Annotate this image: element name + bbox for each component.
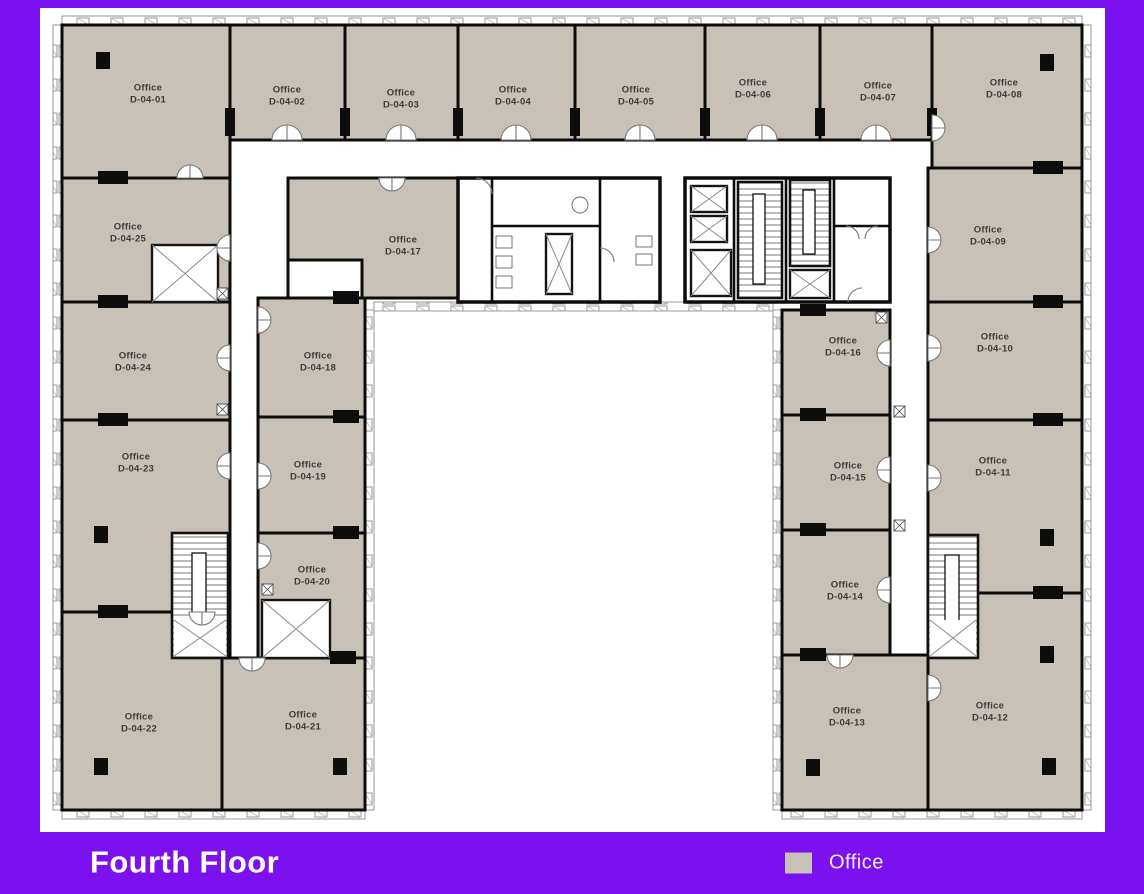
room-label-d-04-02: OfficeD-04-02 (269, 85, 305, 110)
room-label-d-04-05: OfficeD-04-05 (618, 85, 654, 110)
room-label-d-04-14: OfficeD-04-14 (827, 580, 863, 605)
footer: Fourth Floor Office (0, 832, 1144, 894)
floorplan-graphic (40, 8, 1105, 832)
room-label-d-04-16: OfficeD-04-16 (825, 336, 861, 361)
room-label-d-04-18: OfficeD-04-18 (300, 351, 336, 376)
restroom-core (458, 178, 660, 302)
left-wing-stairs (172, 533, 228, 658)
room-label-d-04-21: OfficeD-04-21 (285, 710, 321, 735)
room-label-d-04-13: OfficeD-04-13 (829, 706, 865, 731)
elevator-stair-core (685, 178, 890, 302)
room-label-d-04-12: OfficeD-04-12 (972, 701, 1008, 726)
floorplan-canvas: OfficeD-04-01 OfficeD-04-02 OfficeD-04-0… (40, 8, 1105, 832)
room-label-d-04-01: OfficeD-04-01 (130, 83, 166, 108)
room-label-d-04-24: OfficeD-04-24 (115, 351, 151, 376)
legend-office-swatch (785, 853, 812, 874)
room-label-d-04-03: OfficeD-04-03 (383, 88, 419, 113)
room-label-d-04-19: OfficeD-04-19 (290, 460, 326, 485)
room-label-d-04-11: OfficeD-04-11 (975, 456, 1011, 481)
room-label-d-04-23: OfficeD-04-23 (118, 452, 154, 477)
legend: Office (785, 852, 884, 875)
right-wing-stairs (928, 535, 978, 658)
room-label-d-04-08: OfficeD-04-08 (986, 78, 1022, 103)
room-label-d-04-04: OfficeD-04-04 (495, 85, 531, 110)
room-label-d-04-07: OfficeD-04-07 (860, 81, 896, 106)
floor-title: Fourth Floor (90, 844, 279, 880)
room-label-d-04-20: OfficeD-04-20 (294, 565, 330, 590)
room-label-d-04-25: OfficeD-04-25 (110, 222, 146, 247)
legend-office-label: Office (829, 852, 884, 875)
page: { "colors": { "frame": "#7c11f0", "canva… (0, 0, 1144, 894)
room-label-d-04-22: OfficeD-04-22 (121, 712, 157, 737)
room-label-d-04-10: OfficeD-04-10 (977, 332, 1013, 357)
room-label-d-04-09: OfficeD-04-09 (970, 225, 1006, 250)
room-label-d-04-15: OfficeD-04-15 (830, 461, 866, 486)
room-label-d-04-06: OfficeD-04-06 (735, 78, 771, 103)
room-label-d-04-17: OfficeD-04-17 (385, 235, 421, 260)
